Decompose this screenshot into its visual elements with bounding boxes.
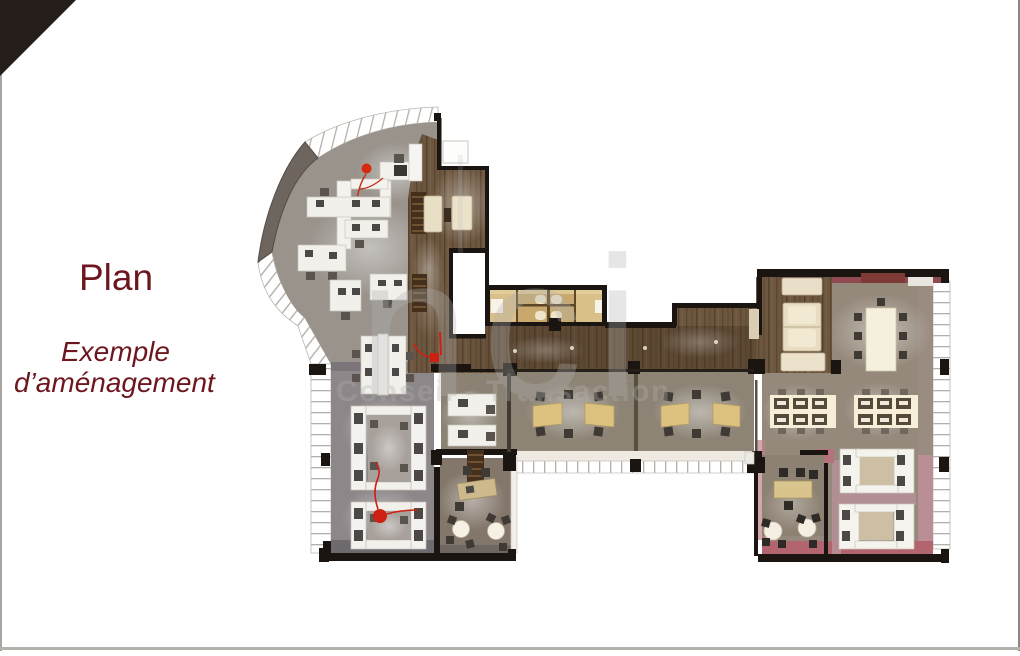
svg-text:Plan: Plan <box>79 257 153 298</box>
svg-text:Exemple: Exemple <box>61 336 170 367</box>
svg-text:d’aménagement: d’aménagement <box>14 367 216 398</box>
svg-text:Conseil - Transaction: Conseil - Transaction <box>336 375 671 408</box>
